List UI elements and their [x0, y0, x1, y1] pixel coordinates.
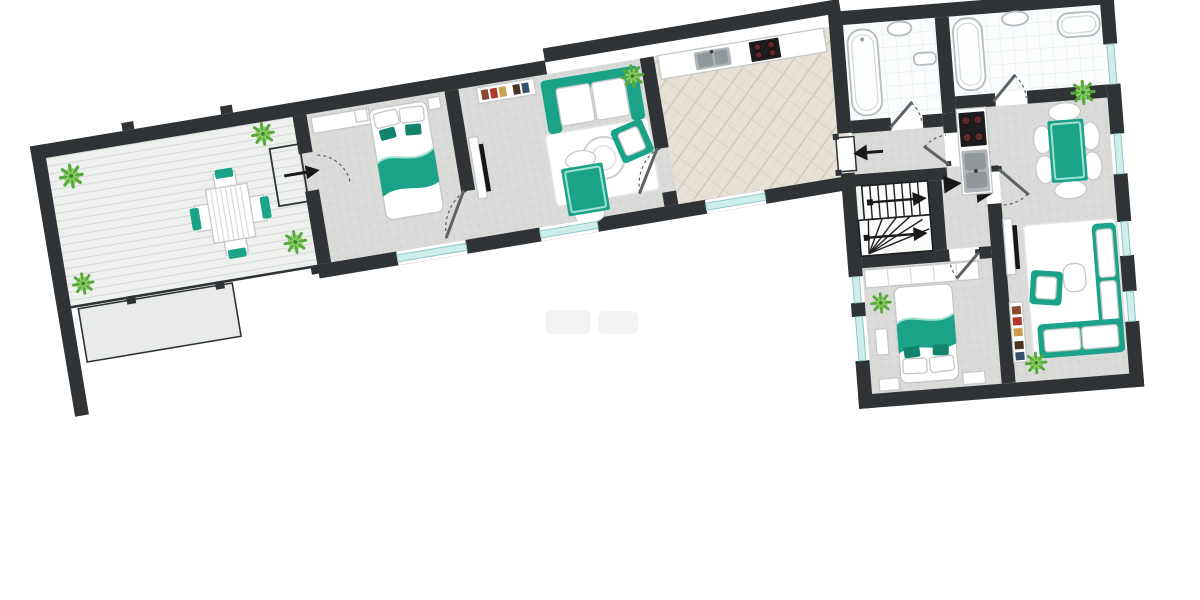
double-bed-2 — [894, 283, 959, 383]
nightstand — [963, 371, 986, 385]
window — [849, 276, 865, 303]
railing-post — [215, 280, 225, 289]
teal-cushion — [933, 344, 949, 355]
window — [1117, 221, 1134, 256]
bathtub-inner — [956, 22, 982, 85]
railing-post — [310, 264, 320, 274]
watermark-smudge — [545, 310, 638, 334]
staircase — [856, 181, 933, 256]
pillow — [929, 355, 955, 373]
armchair — [1029, 270, 1063, 306]
living-hall-wall — [662, 190, 678, 206]
pillow — [399, 106, 425, 124]
floor-plan-svg — [0, 0, 1200, 600]
kitchen-counter-2 — [956, 107, 993, 195]
railing-post — [126, 295, 136, 304]
towel-radiator — [913, 52, 936, 66]
nightstand — [879, 378, 900, 392]
door-hinge — [833, 134, 839, 140]
nightstand — [427, 96, 441, 110]
plant-icon — [1025, 352, 1046, 373]
floor-plan-stage — [0, 0, 1200, 600]
teal-cushion — [903, 345, 920, 358]
left-wing — [28, 0, 886, 417]
right-block — [822, 0, 1144, 409]
door-hinge — [835, 170, 841, 176]
kitchen-sink-icon — [961, 149, 990, 193]
plant-icon — [1071, 81, 1095, 105]
plant-icon — [871, 293, 891, 313]
stove-icon — [958, 111, 987, 147]
teal-cushion — [405, 123, 422, 135]
window — [1123, 291, 1139, 322]
pillow — [903, 358, 928, 374]
bench — [875, 328, 889, 355]
door-slab — [836, 136, 857, 171]
coffee-table — [1062, 263, 1086, 293]
bathtub-small-inner — [1061, 15, 1096, 34]
nightstand — [354, 108, 368, 122]
